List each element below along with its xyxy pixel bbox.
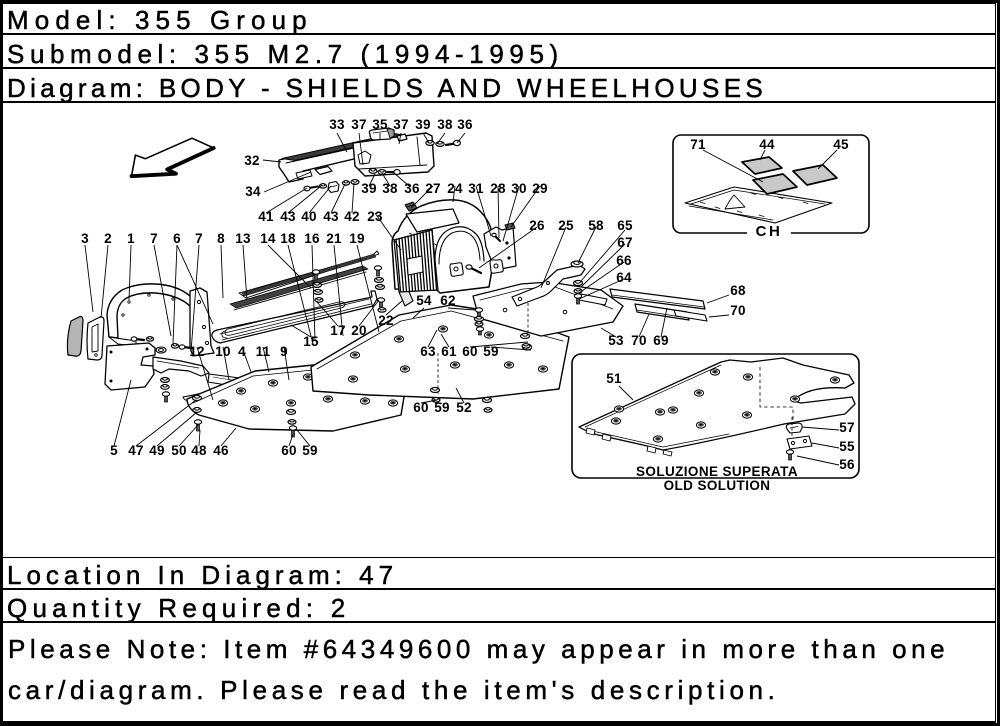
- svg-text:13: 13: [235, 231, 251, 246]
- svg-text:8: 8: [217, 231, 225, 246]
- svg-text:39: 39: [415, 117, 431, 132]
- svg-text:20: 20: [351, 323, 367, 338]
- svg-text:34: 34: [245, 184, 261, 199]
- svg-text:SOLUZIONE SUPERATA: SOLUZIONE SUPERATA: [636, 464, 798, 479]
- svg-text:43: 43: [323, 209, 339, 224]
- svg-text:45: 45: [833, 137, 849, 152]
- svg-text:36: 36: [404, 181, 420, 196]
- svg-text:6: 6: [173, 231, 181, 246]
- svg-text:64: 64: [616, 270, 632, 285]
- svg-text:65: 65: [617, 218, 633, 233]
- svg-text:59: 59: [483, 344, 499, 359]
- svg-text:61: 61: [441, 344, 457, 359]
- svg-text:62: 62: [440, 293, 456, 308]
- svg-text:3: 3: [81, 231, 89, 246]
- svg-text:44: 44: [759, 137, 775, 152]
- svg-text:38: 38: [437, 117, 453, 132]
- svg-text:25: 25: [558, 218, 574, 233]
- svg-text:31: 31: [468, 181, 484, 196]
- svg-text:53: 53: [608, 333, 624, 348]
- svg-text:39: 39: [361, 181, 377, 196]
- svg-text:16: 16: [304, 231, 320, 246]
- svg-text:70: 70: [631, 333, 647, 348]
- svg-text:18: 18: [280, 231, 296, 246]
- svg-text:21: 21: [326, 231, 342, 246]
- svg-text:37: 37: [351, 117, 367, 132]
- svg-text:1: 1: [127, 231, 135, 246]
- svg-text:70: 70: [730, 303, 746, 318]
- svg-text:40: 40: [301, 209, 317, 224]
- svg-text:7: 7: [150, 231, 158, 246]
- svg-text:19: 19: [349, 231, 365, 246]
- svg-text:11: 11: [256, 344, 271, 359]
- svg-text:14: 14: [260, 231, 276, 246]
- svg-text:4: 4: [238, 344, 246, 359]
- svg-text:33: 33: [329, 117, 345, 132]
- svg-text:10: 10: [215, 344, 231, 359]
- svg-text:22: 22: [378, 313, 394, 328]
- svg-text:51: 51: [606, 371, 622, 386]
- svg-text:17: 17: [330, 323, 346, 338]
- svg-text:38: 38: [382, 181, 398, 196]
- svg-text:67: 67: [617, 235, 633, 250]
- svg-text:71: 71: [690, 137, 706, 152]
- svg-text:35: 35: [372, 117, 388, 132]
- svg-text:36: 36: [457, 117, 473, 132]
- svg-text:54: 54: [416, 293, 432, 308]
- svg-text:59: 59: [434, 400, 450, 415]
- svg-text:7: 7: [195, 231, 203, 246]
- svg-text:OLD SOLUTION: OLD SOLUTION: [664, 478, 771, 493]
- svg-text:56: 56: [839, 457, 855, 472]
- svg-text:50: 50: [171, 443, 187, 458]
- svg-text:9: 9: [280, 344, 288, 359]
- svg-text:58: 58: [588, 218, 604, 233]
- svg-text:27: 27: [425, 181, 441, 196]
- svg-text:37: 37: [393, 117, 409, 132]
- svg-text:59: 59: [302, 443, 318, 458]
- svg-text:32: 32: [244, 153, 260, 168]
- svg-text:43: 43: [280, 209, 296, 224]
- svg-text:2: 2: [104, 231, 112, 246]
- svg-text:30: 30: [511, 181, 527, 196]
- svg-text:55: 55: [839, 439, 855, 454]
- svg-text:49: 49: [149, 443, 165, 458]
- svg-text:41: 41: [258, 209, 274, 224]
- svg-text:47: 47: [128, 443, 144, 458]
- svg-text:57: 57: [839, 420, 855, 435]
- svg-text:68: 68: [730, 283, 746, 298]
- svg-text:CH: CH: [756, 223, 783, 240]
